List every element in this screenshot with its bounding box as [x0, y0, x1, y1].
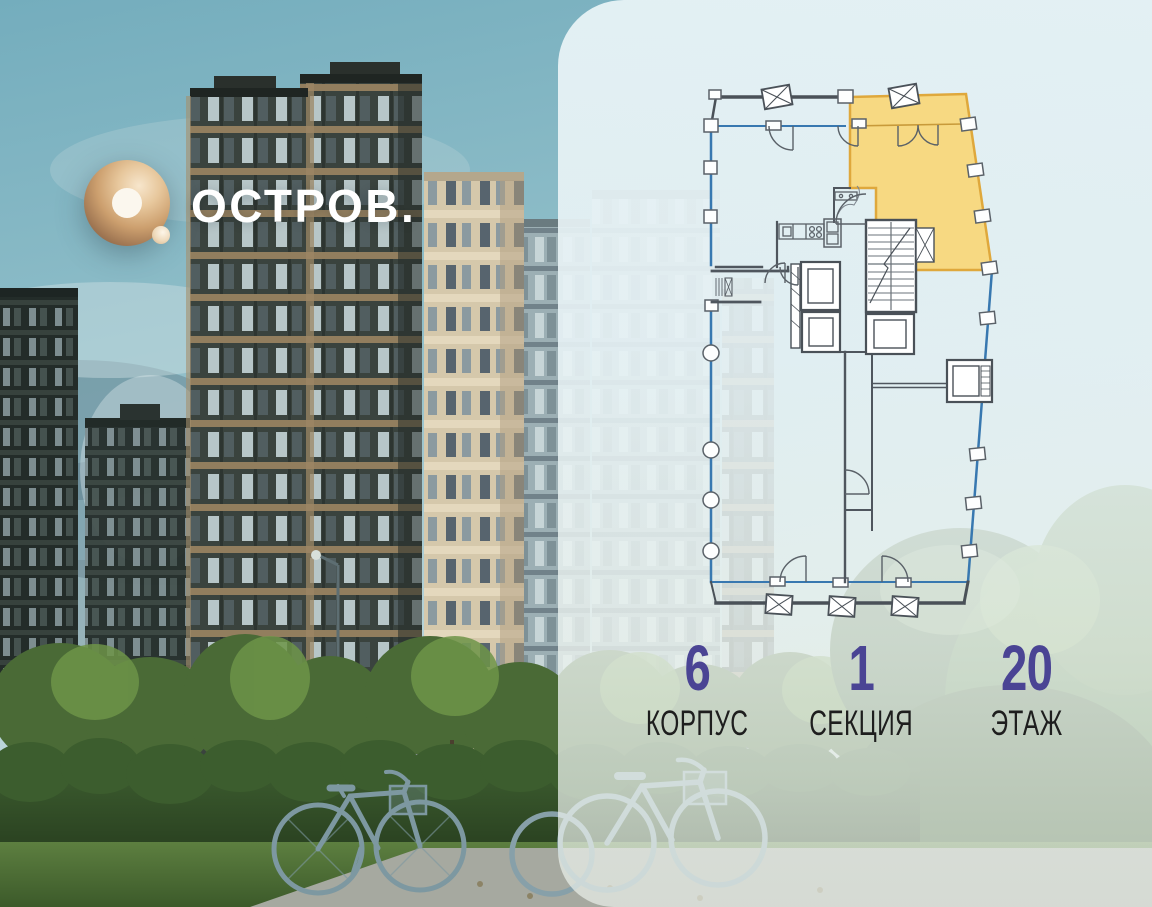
section-value: 1 — [848, 636, 874, 700]
right-utility-bay — [947, 360, 992, 402]
floor-plan — [652, 76, 1008, 642]
brand-wordmark: ОСТРОВ. — [191, 183, 416, 229]
apartment-stats: 6 КОРПУС 1 СЕКЦИЯ 20 ЭТАЖ — [558, 636, 1152, 756]
floor-label: ЭТАЖ — [991, 706, 1063, 741]
brand-ring-hole — [112, 188, 142, 218]
floor-value: 20 — [1001, 636, 1052, 700]
stat-floor: 20 ЭТАЖ — [922, 636, 1132, 741]
left-bay-vent — [716, 278, 732, 296]
page: 6 КОРПУС 1 СЕКЦИЯ 20 ЭТАЖ ОСТРОВ. — [0, 0, 1152, 907]
building-label: КОРПУС — [646, 706, 748, 741]
kitchen-fixtures — [779, 186, 859, 247]
brand-dot-icon — [152, 226, 170, 244]
building-value: 6 — [684, 636, 710, 700]
section-label: СЕКЦИЯ — [809, 706, 913, 741]
